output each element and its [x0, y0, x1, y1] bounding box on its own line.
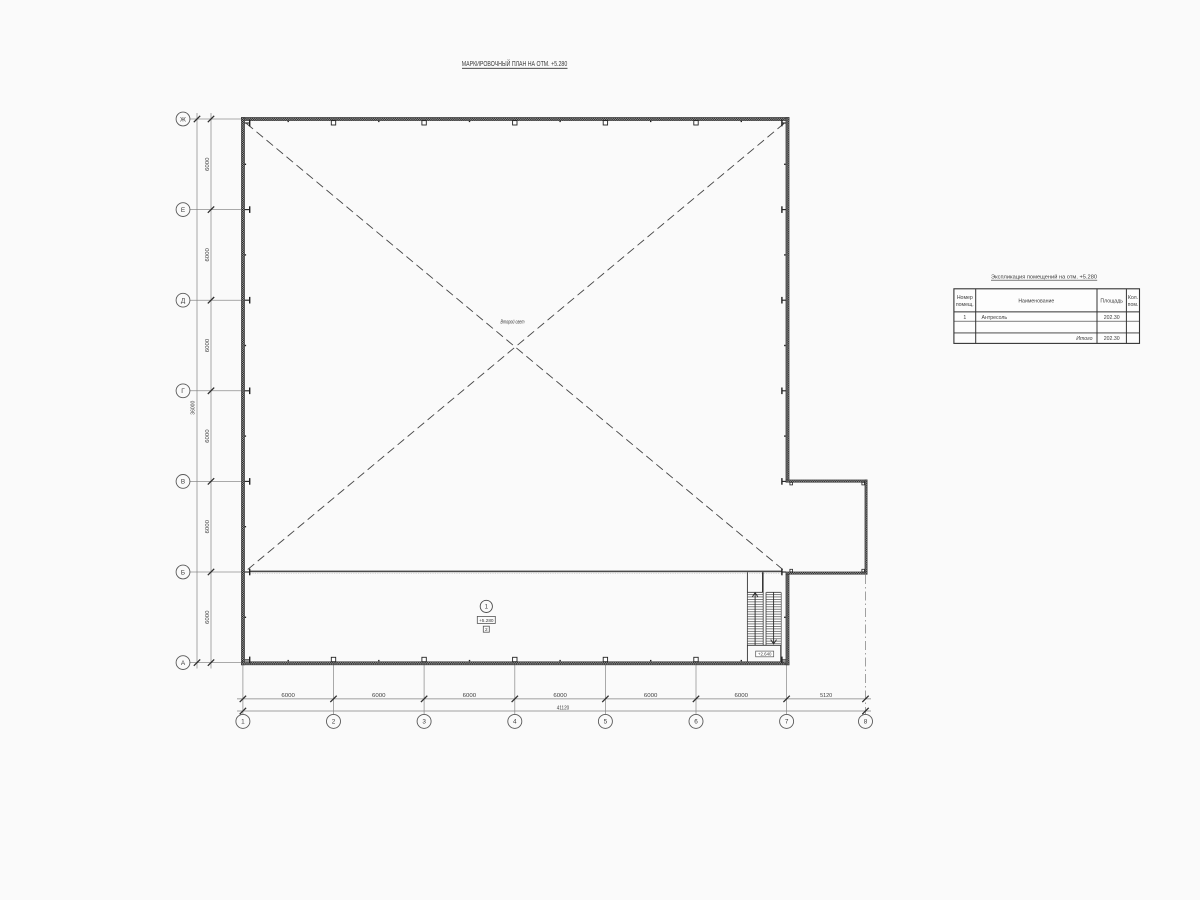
- svg-text:Ж: Ж: [180, 116, 186, 123]
- svg-text:5120: 5120: [820, 693, 832, 699]
- svg-text:Б: Б: [181, 569, 185, 576]
- svg-text:36000: 36000: [191, 400, 197, 414]
- svg-text:6000: 6000: [553, 693, 567, 699]
- svg-text:4: 4: [513, 719, 517, 726]
- svg-text:6000: 6000: [372, 693, 386, 699]
- svg-text:202.30: 202.30: [1104, 336, 1120, 342]
- svg-text:МАРКИРОВОЧНЫЙ ПЛАН НА ОТМ. +5.: МАРКИРОВОЧНЫЙ ПЛАН НА ОТМ. +5.280: [462, 59, 568, 68]
- svg-text:41120: 41120: [557, 705, 570, 711]
- svg-text:1: 1: [485, 604, 489, 611]
- svg-text:3: 3: [422, 719, 426, 726]
- svg-text:Площадь: Площадь: [1100, 299, 1123, 305]
- svg-text:+5.280: +5.280: [479, 618, 494, 623]
- svg-text:6000: 6000: [205, 520, 211, 534]
- svg-text:6000: 6000: [644, 693, 658, 699]
- svg-text:Наименование: Наименование: [1018, 299, 1054, 305]
- svg-text:2: 2: [485, 627, 488, 632]
- svg-text:1: 1: [241, 719, 245, 726]
- svg-text:Д: Д: [181, 298, 186, 305]
- svg-text:6000: 6000: [205, 610, 211, 624]
- svg-text:Итого: Итого: [1076, 336, 1092, 342]
- svg-text:6000: 6000: [205, 429, 211, 443]
- svg-text:6000: 6000: [205, 338, 211, 352]
- svg-text:1: 1: [963, 315, 966, 321]
- svg-text:5: 5: [604, 719, 608, 726]
- svg-text:Г: Г: [181, 388, 185, 395]
- svg-text:8: 8: [864, 719, 868, 726]
- svg-text:Антресоль: Антресоль: [982, 315, 1008, 321]
- svg-text:Кол.: Кол.: [1128, 295, 1138, 301]
- svg-text:6: 6: [694, 719, 698, 726]
- svg-text:Второй свет: Второй свет: [501, 318, 525, 325]
- svg-text:2: 2: [332, 719, 336, 726]
- svg-text:Е: Е: [181, 207, 185, 214]
- svg-text:6000: 6000: [735, 693, 749, 699]
- svg-text:+2.640: +2.640: [758, 652, 772, 657]
- svg-text:7: 7: [785, 719, 789, 726]
- svg-text:6000: 6000: [281, 693, 295, 699]
- svg-text:202.30: 202.30: [1104, 315, 1120, 321]
- svg-text:Номер: Номер: [957, 295, 973, 301]
- svg-text:помещ.: помещ.: [956, 302, 974, 308]
- svg-text:6000: 6000: [463, 693, 477, 699]
- svg-text:В: В: [181, 479, 185, 486]
- svg-text:А: А: [181, 660, 186, 667]
- svg-text:6000: 6000: [205, 248, 211, 262]
- svg-text:пом.: пом.: [1128, 302, 1139, 308]
- svg-text:6000: 6000: [205, 157, 211, 171]
- svg-text:Экспликация помещений на отм.: Экспликация помещений на отм. +5.280: [991, 274, 1097, 281]
